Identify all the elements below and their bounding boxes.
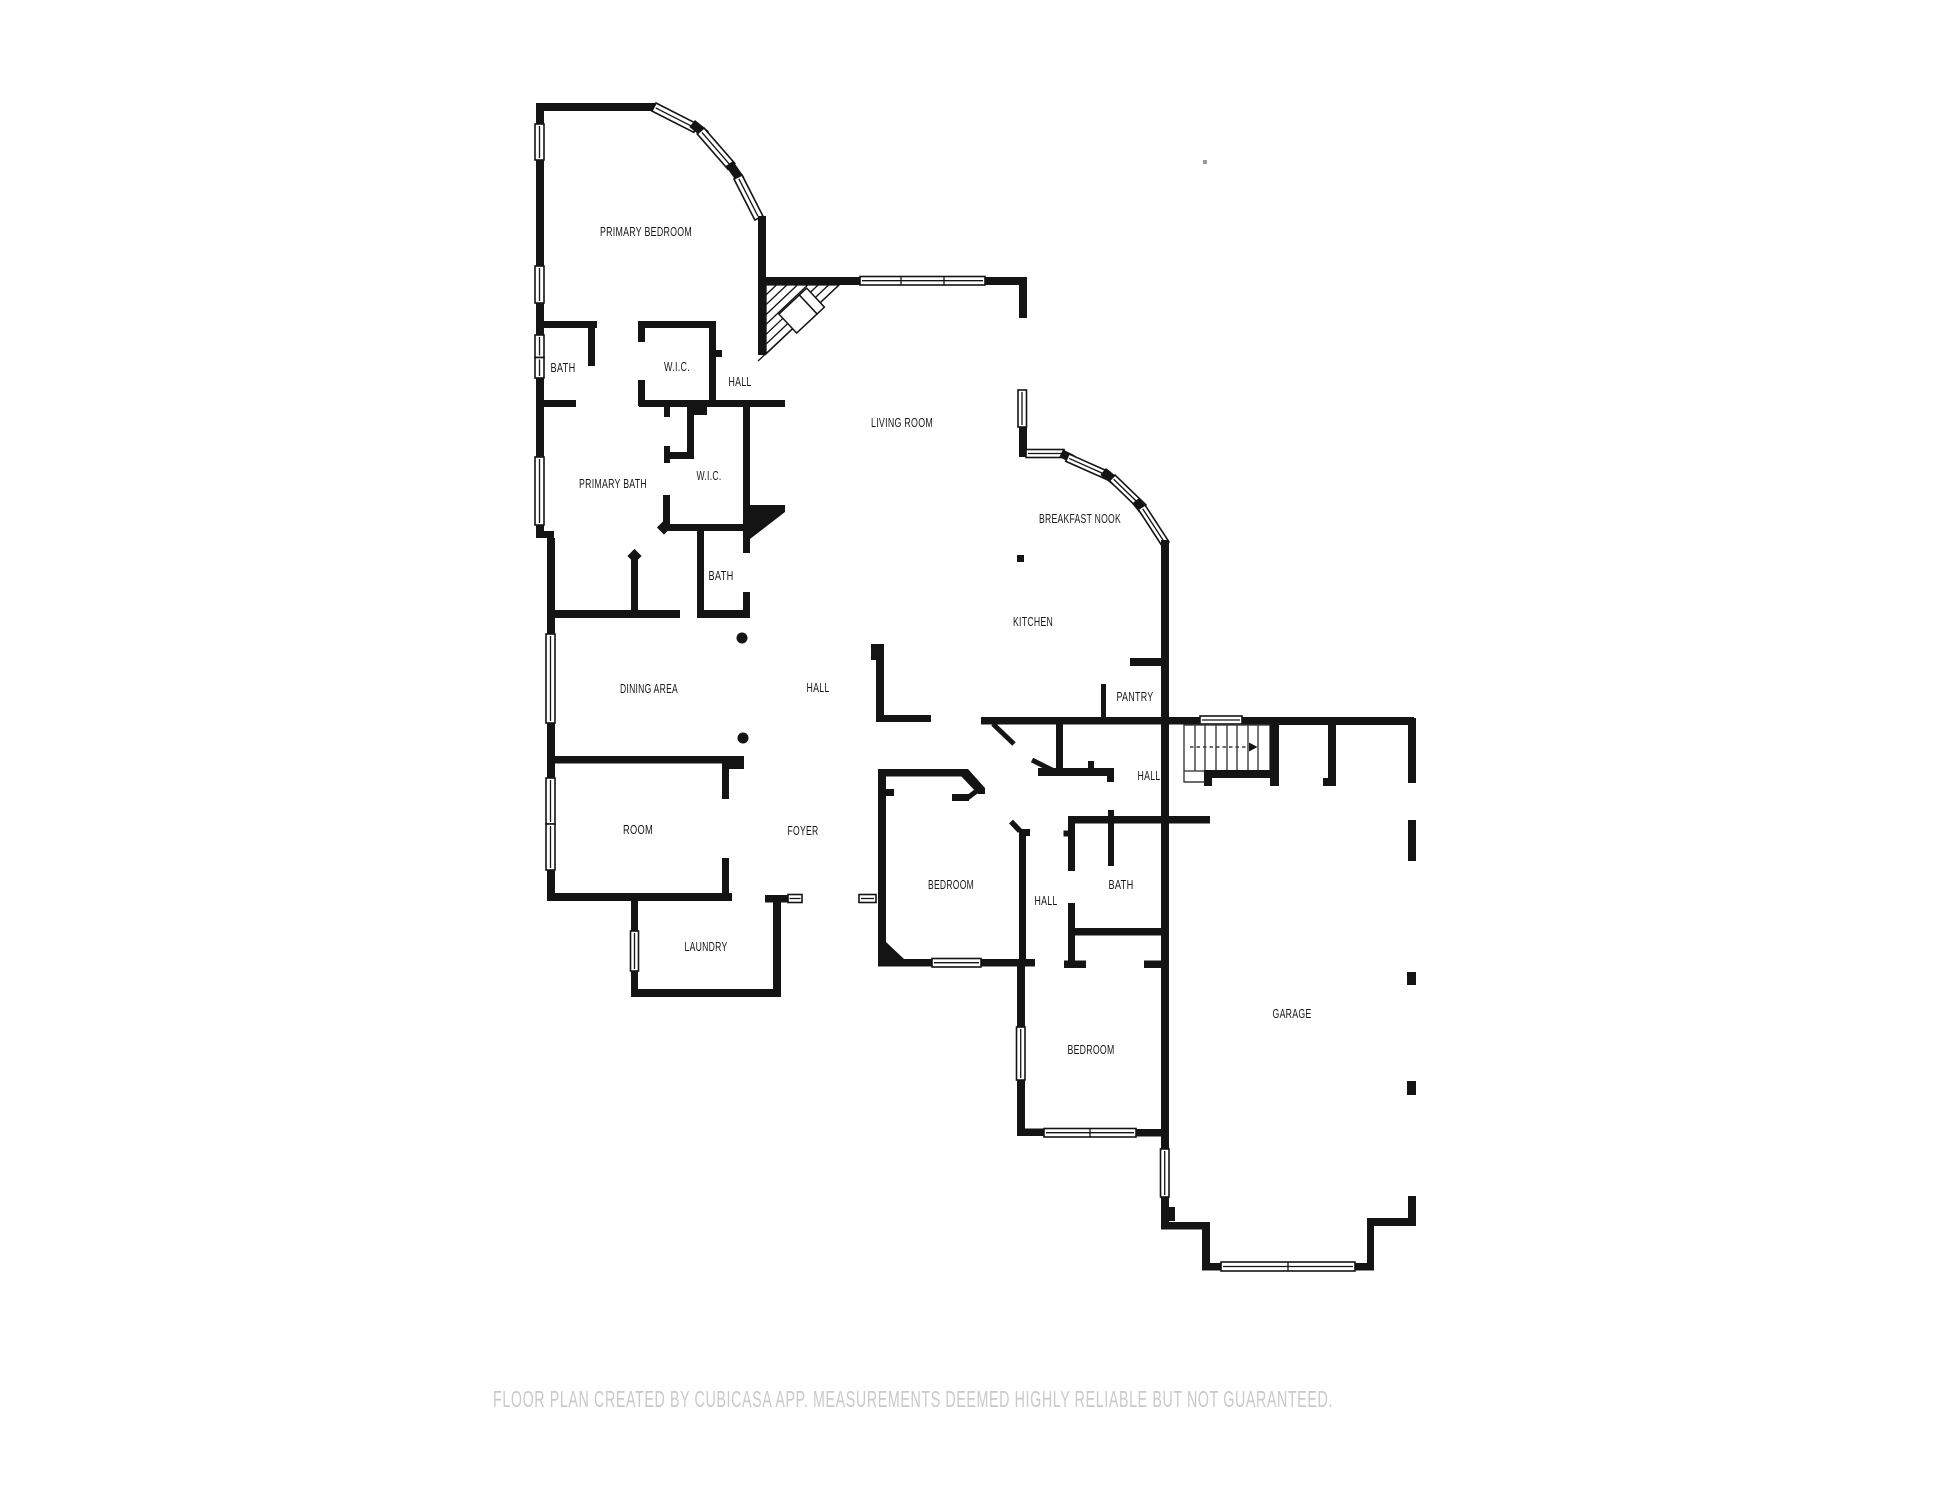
svg-text:HALL: HALL [1035, 893, 1058, 908]
svg-text:LAUNDRY: LAUNDRY [685, 939, 728, 954]
svg-text:BATH: BATH [709, 568, 734, 583]
svg-text:BREAKFAST NOOK: BREAKFAST NOOK [1039, 511, 1121, 526]
svg-text:HALL: HALL [1138, 768, 1161, 783]
svg-text:LIVING ROOM: LIVING ROOM [871, 415, 933, 430]
svg-text:BATH: BATH [551, 360, 576, 375]
svg-text:PRIMARY BEDROOM: PRIMARY BEDROOM [600, 224, 692, 239]
svg-text:HALL: HALL [807, 680, 830, 695]
svg-text:FLOOR PLAN CREATED BY CUBICASA: FLOOR PLAN CREATED BY CUBICASA APP. MEAS… [493, 1386, 1333, 1412]
svg-text:BEDROOM: BEDROOM [928, 877, 974, 892]
svg-text:KITCHEN: KITCHEN [1013, 614, 1053, 629]
svg-text:BEDROOM: BEDROOM [1068, 1042, 1115, 1057]
svg-text:FOYER: FOYER [788, 823, 819, 838]
svg-text:PANTRY: PANTRY [1117, 689, 1154, 704]
svg-text:W.I.C.: W.I.C. [697, 468, 722, 483]
svg-text:ROOM: ROOM [623, 822, 653, 837]
svg-text:DINING AREA: DINING AREA [620, 681, 678, 696]
svg-text:HALL: HALL [729, 374, 752, 389]
svg-text:GARAGE: GARAGE [1273, 1006, 1312, 1021]
svg-text:W.I.C.: W.I.C. [664, 359, 690, 374]
svg-text:BATH: BATH [1109, 877, 1134, 892]
svg-text:PRIMARY BATH: PRIMARY BATH [579, 476, 647, 491]
